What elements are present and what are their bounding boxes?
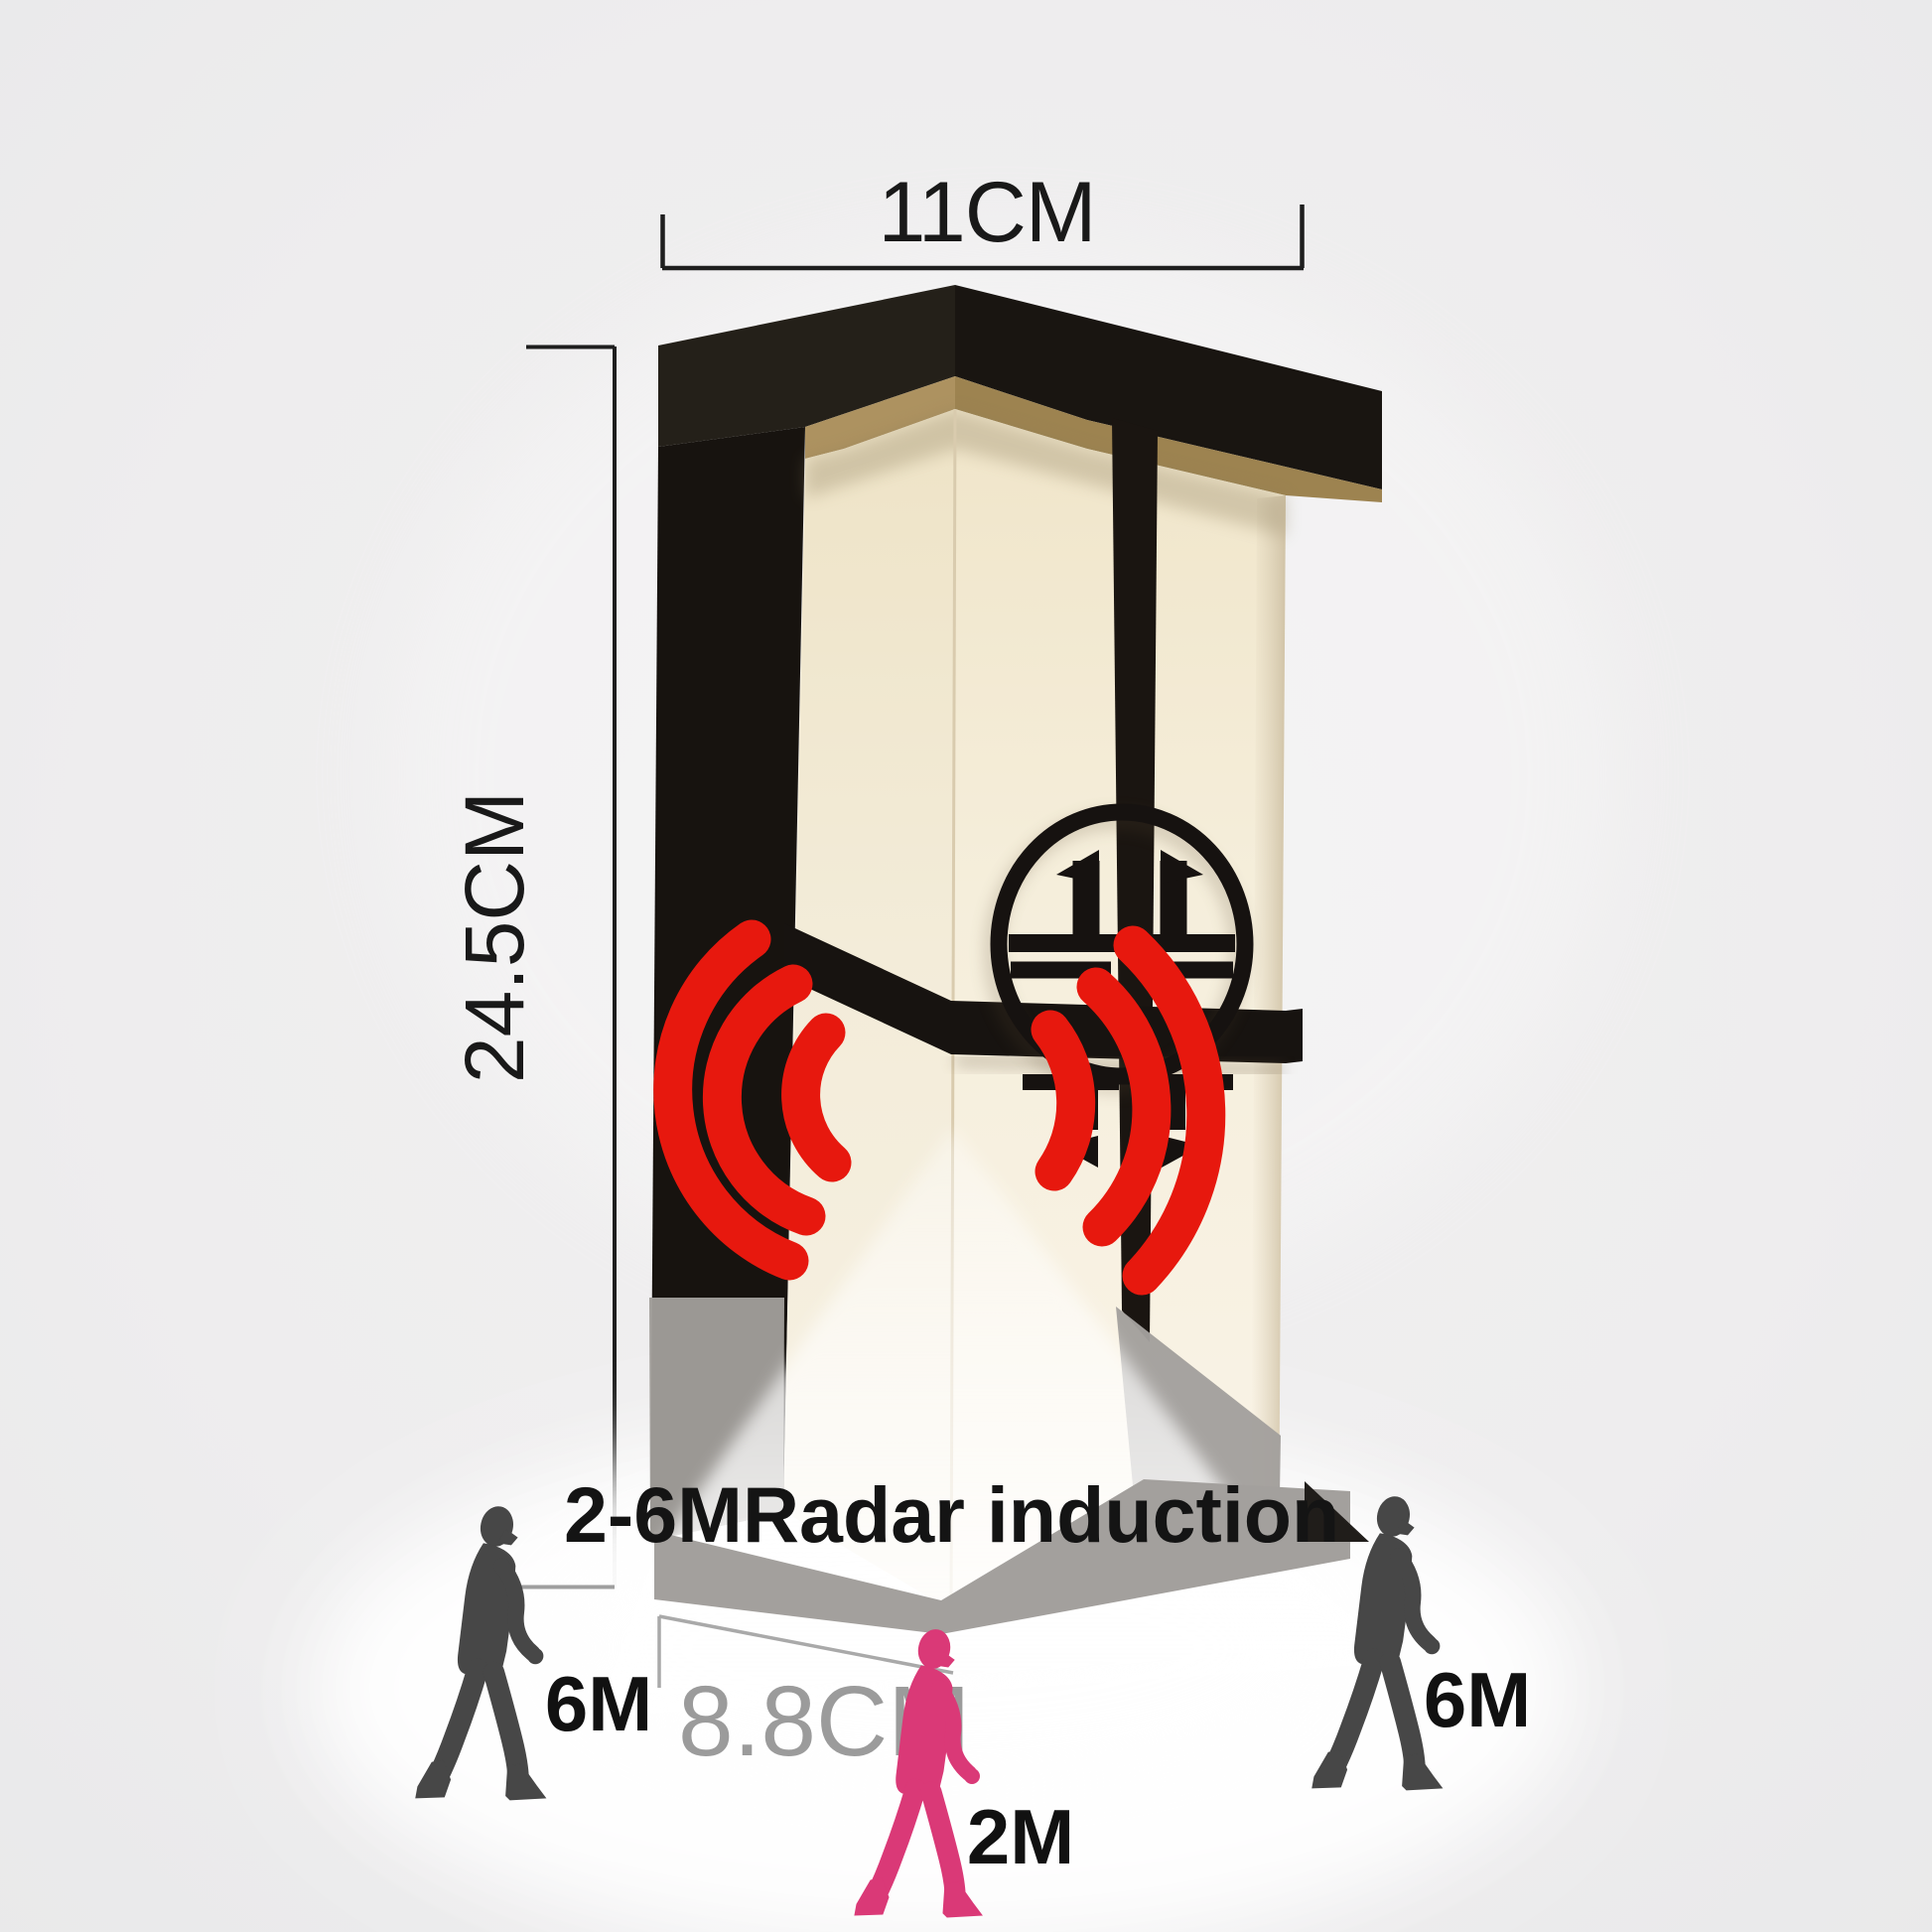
svg-text:24.5CM: 24.5CM	[448, 791, 541, 1083]
svg-text:6M: 6M	[1424, 1656, 1531, 1743]
svg-text:2-6MRadar induction: 2-6MRadar induction	[564, 1470, 1339, 1559]
svg-text:11CM: 11CM	[878, 165, 1095, 260]
svg-text:2M: 2M	[967, 1793, 1074, 1880]
svg-text:6M: 6M	[545, 1660, 652, 1747]
